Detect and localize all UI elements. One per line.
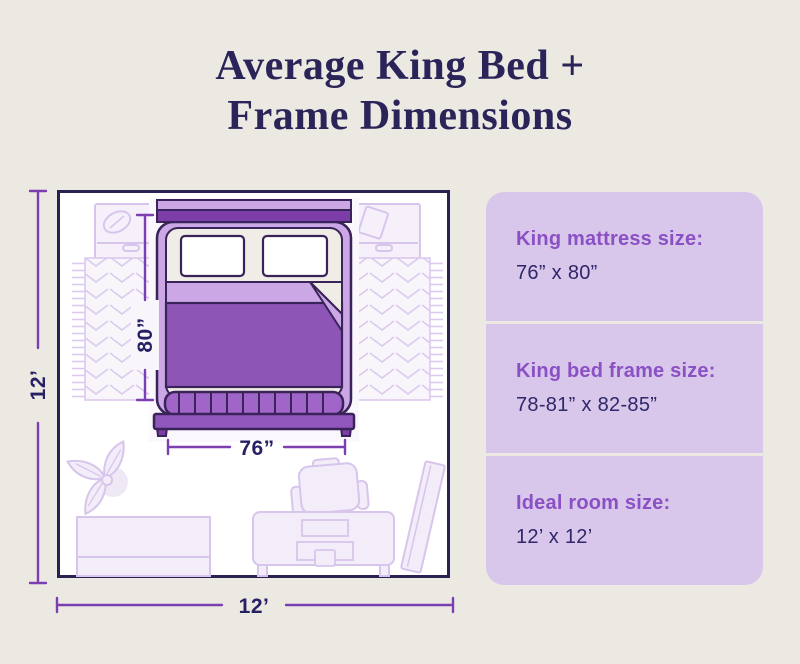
spec-item-bed-frame-size: King bed frame size: 78-81” x 82-85” <box>486 321 763 453</box>
room-diagram: 80” 76” <box>57 190 450 578</box>
room-height-label: 12’ <box>27 370 50 401</box>
page-title: Average King Bed + Frame Dimensions <box>0 42 800 141</box>
spec-value: 12’ x 12’ <box>516 526 749 549</box>
spec-panel: King mattress size: 76” x 80” King bed f… <box>486 192 763 585</box>
spec-item-room-size: Ideal room size: 12’ x 12’ <box>486 453 763 585</box>
bed-length-label: 80” <box>134 317 157 352</box>
room-width-dimension: 12’ <box>50 593 460 627</box>
spec-label: Ideal room size: <box>516 492 749 515</box>
infographic-canvas: { "title": { "line1": "Average King Bed … <box>0 0 800 664</box>
page-title-line1: Average King Bed + <box>0 42 800 92</box>
headboard <box>157 200 351 222</box>
room-width-label: 12’ <box>239 595 270 618</box>
spec-value: 78-81” x 82-85” <box>516 394 749 417</box>
room-diagram-svg: 80” 76” <box>57 190 450 578</box>
page-title-line2: Frame Dimensions <box>0 92 800 142</box>
footboard <box>154 392 354 436</box>
pillow-left <box>181 236 244 276</box>
spec-value: 76” x 80” <box>516 262 749 285</box>
pillow-right <box>263 236 327 276</box>
bed-width-label: 76” <box>239 437 274 460</box>
spec-label: King mattress size: <box>516 228 749 251</box>
bench-icon <box>77 517 210 576</box>
duvet <box>166 303 342 387</box>
room-height-dimension: 12’ <box>22 185 56 589</box>
spec-label: King bed frame size: <box>516 360 749 383</box>
king-bed-icon <box>149 198 359 442</box>
spec-item-mattress-size: King mattress size: 76” x 80” <box>486 192 763 321</box>
